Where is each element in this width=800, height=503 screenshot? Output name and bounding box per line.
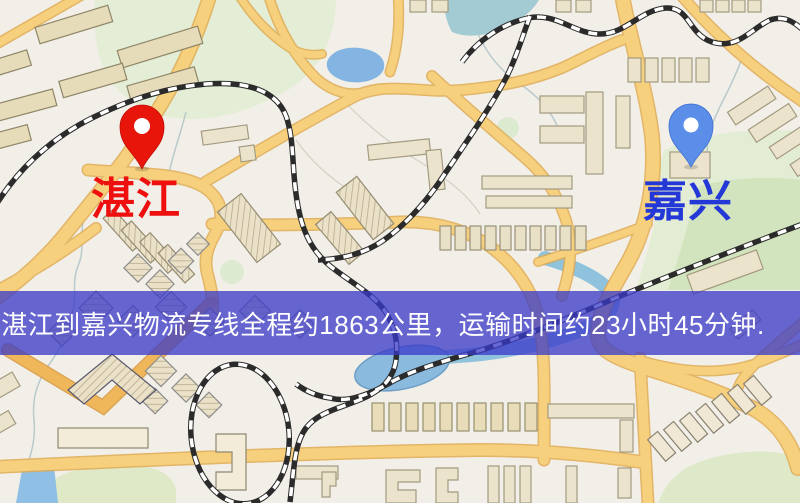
route-info-text: 湛江到嘉兴物流专线全程约1863公里，运输时间约23小时45分钟.: [1, 305, 798, 342]
map-canvas[interactable]: [0, 0, 800, 503]
route-info-banner: 湛江到嘉兴物流专线全程约1863公里，运输时间约23小时45分钟.: [0, 291, 800, 355]
map-screenshot: 湛江 嘉兴 湛江到嘉兴物流专线全程约1863公里，运输时间约23小时45分钟.: [0, 0, 800, 503]
